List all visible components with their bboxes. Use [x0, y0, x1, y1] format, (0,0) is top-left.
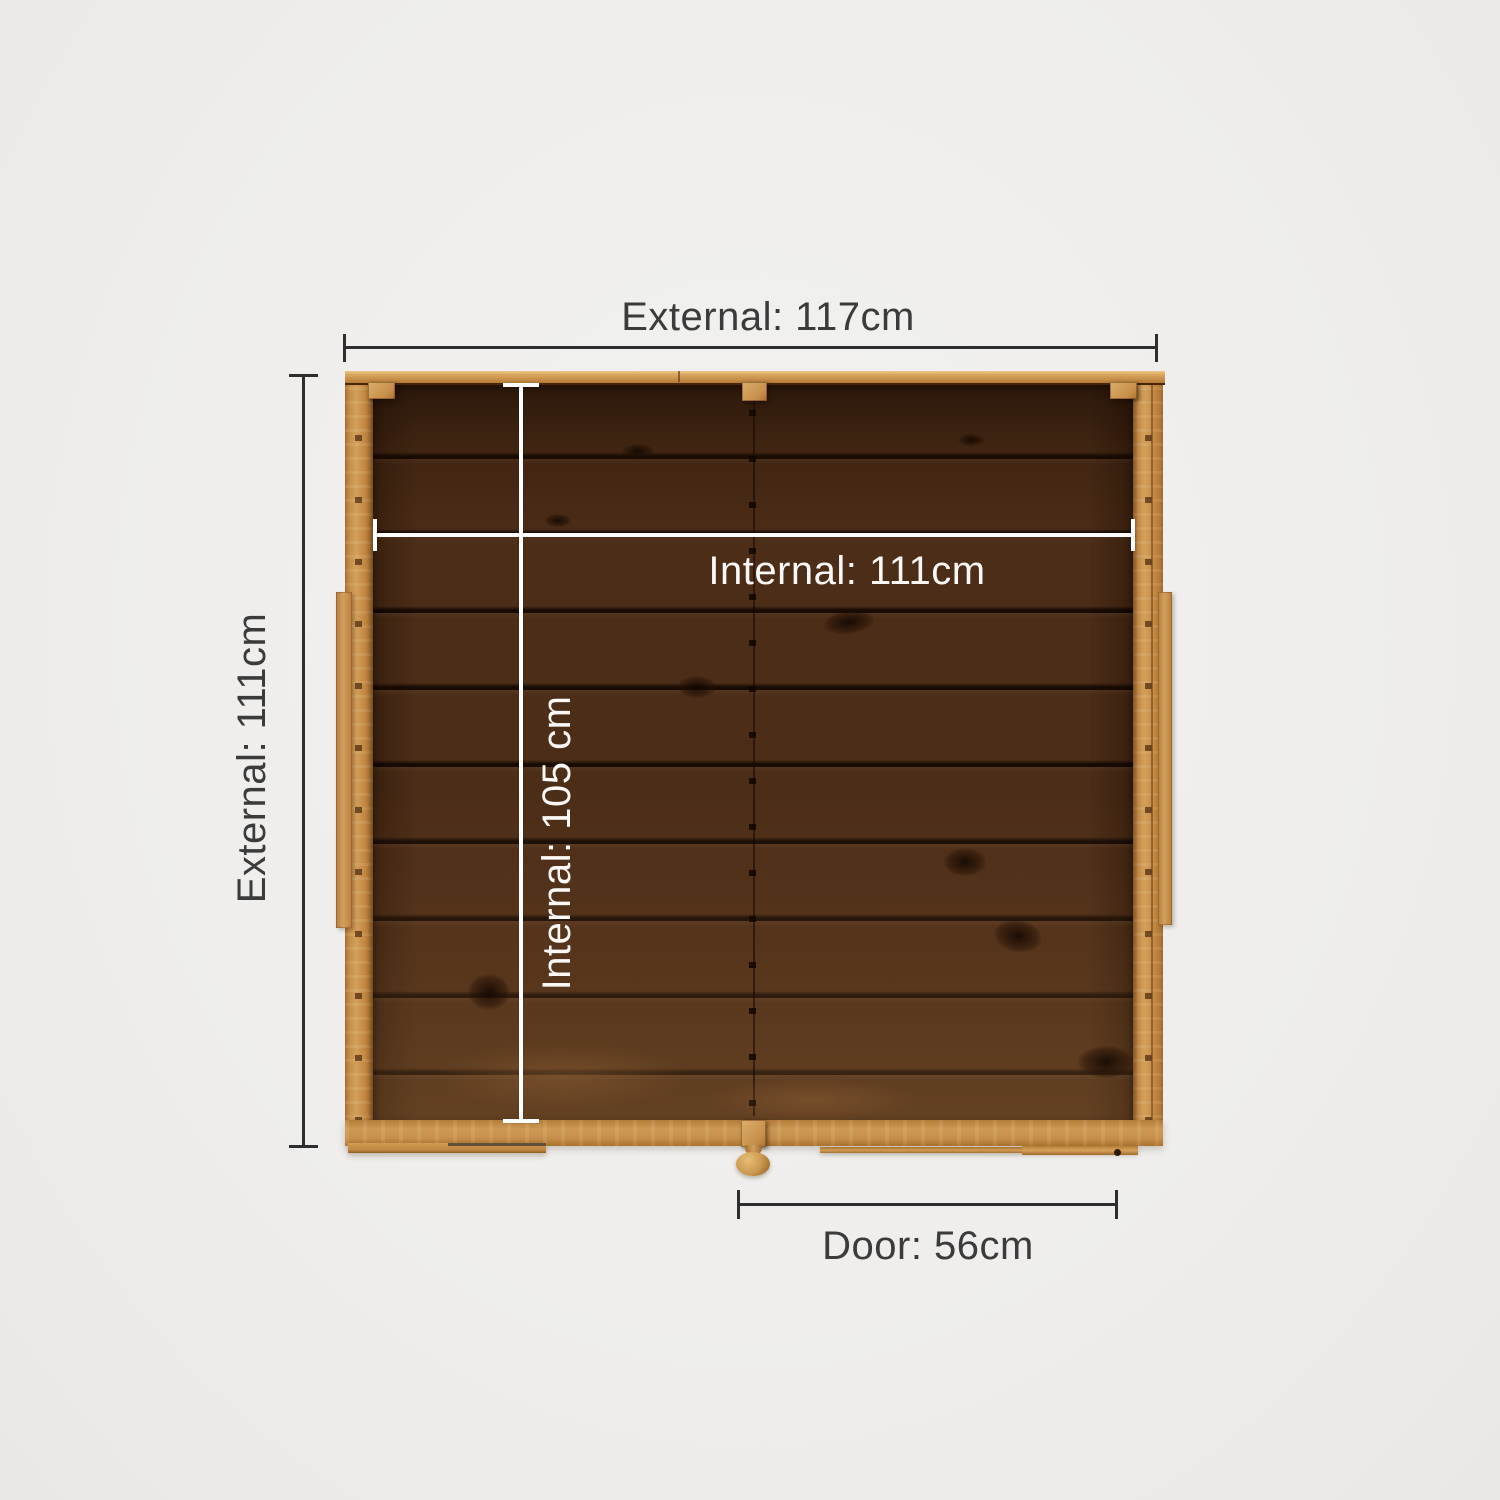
internal-width-line [375, 533, 1135, 537]
wall-top-seam [678, 371, 680, 382]
internal-depth-tick-bottom [503, 1119, 539, 1123]
external-depth-tick-top [289, 374, 318, 377]
external-depth-label: External: 111cm [230, 608, 274, 908]
door-width-tick-left [737, 1190, 740, 1219]
bottom-sill-edge [448, 1143, 546, 1146]
wall-screws [355, 379, 362, 1137]
wood-knot [1078, 1046, 1134, 1078]
external-depth-line [302, 375, 305, 1147]
shed-top-view-dimension-diagram: External: 117cm External: 111cm Internal… [0, 0, 1500, 1500]
side-batten-left [336, 592, 352, 928]
internal-depth-label: Internal: 105 cm [535, 633, 579, 1053]
wood-knot [823, 607, 876, 638]
corner-post-top-left [368, 382, 395, 399]
wood-knot [992, 916, 1045, 956]
top-center-stud [742, 382, 767, 401]
floor-screw-dots [749, 410, 756, 1116]
door-screw [1114, 1149, 1121, 1156]
wall-right-seam [1151, 375, 1153, 1143]
wood-knot [944, 848, 986, 876]
internal-depth-tick-top [503, 383, 539, 387]
internal-width-tick-left [373, 519, 377, 551]
internal-width-tick-right [1131, 519, 1135, 551]
shed-floor [372, 382, 1134, 1122]
external-depth-tick-bottom [289, 1145, 318, 1148]
corner-post-top-right [1110, 382, 1137, 399]
internal-depth-line [519, 385, 523, 1123]
door-width-label: Door: 56cm [733, 1224, 1123, 1268]
external-width-tick-right [1155, 334, 1158, 362]
external-width-line [344, 346, 1158, 349]
wood-knot [958, 434, 984, 446]
wood-knot [622, 444, 654, 458]
wood-knot [545, 514, 571, 527]
external-width-label: External: 117cm [360, 295, 1176, 339]
door-knob [736, 1152, 770, 1176]
door-width-tick-right [1115, 1190, 1118, 1219]
door-latch-block [741, 1120, 766, 1147]
wood-knot [468, 974, 510, 1010]
internal-width-label: Internal: 111cm [447, 549, 1247, 593]
door-width-line [738, 1203, 1118, 1206]
wood-grain-patch [702, 1078, 922, 1122]
external-width-tick-left [343, 334, 346, 362]
wood-knot [678, 676, 716, 698]
side-batten-right [1158, 592, 1172, 925]
